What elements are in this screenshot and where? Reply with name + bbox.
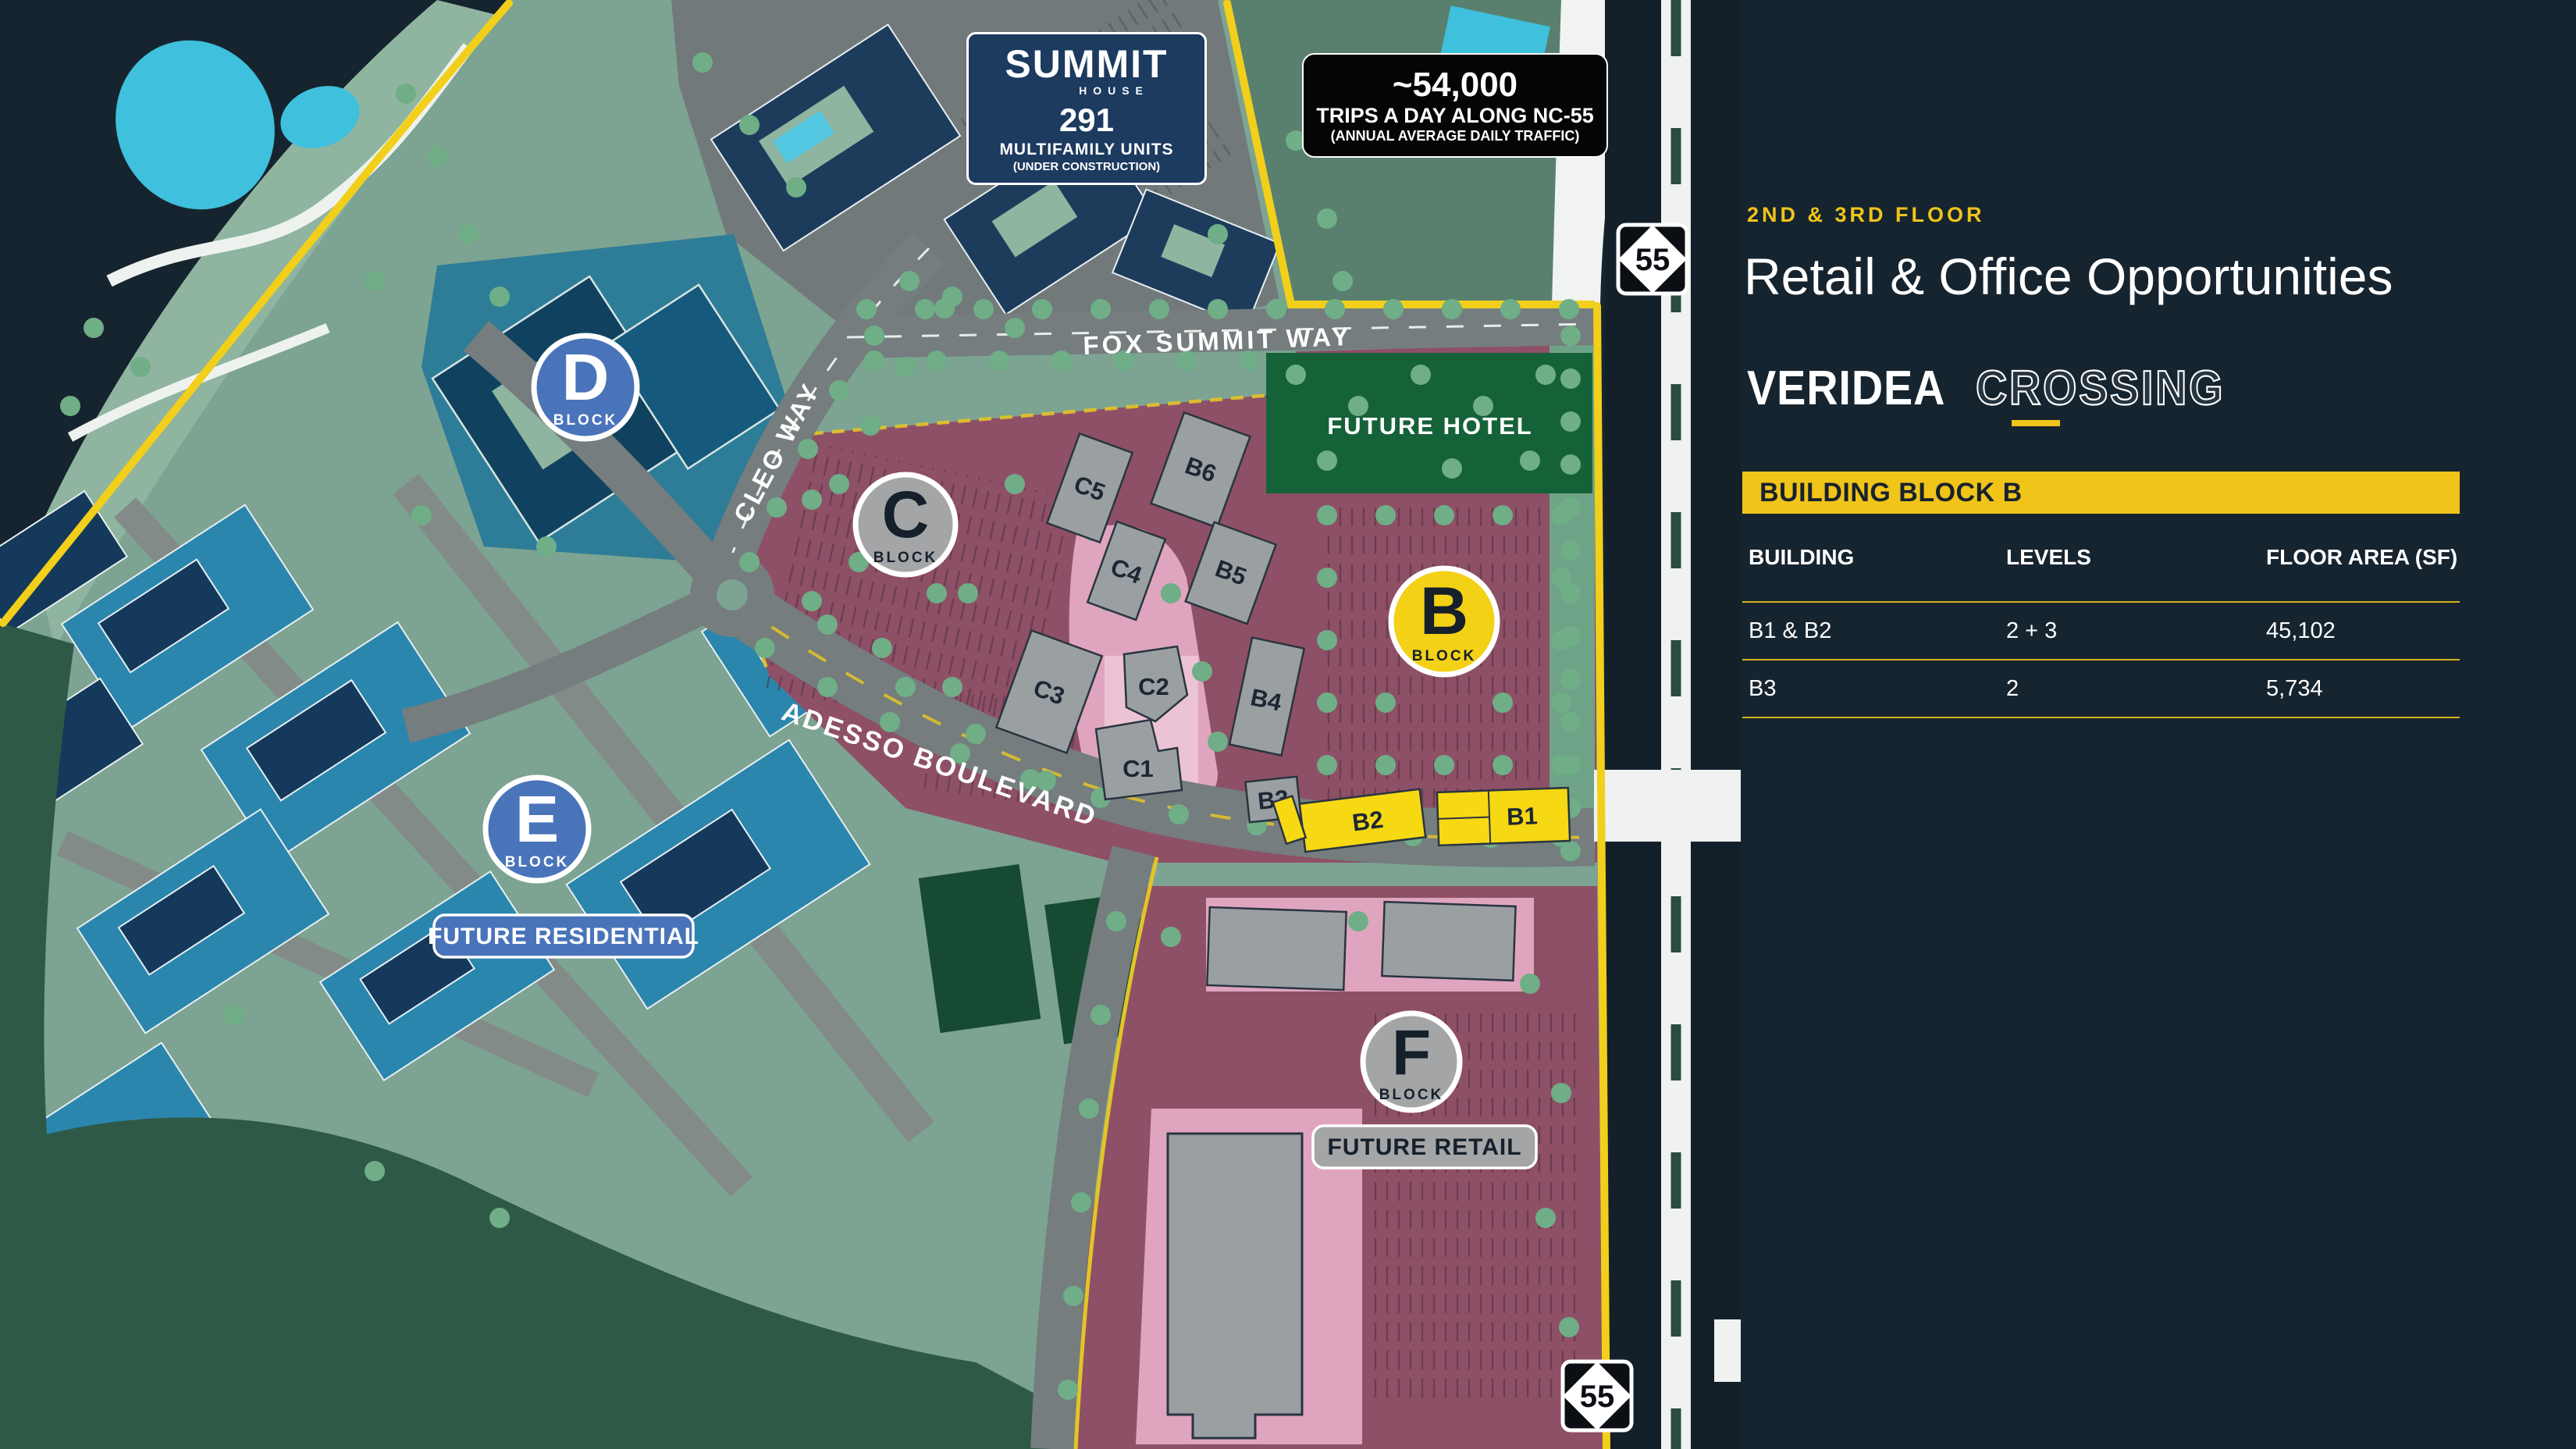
tree-icon — [536, 536, 557, 557]
tree-icon — [958, 583, 978, 603]
tree-icon — [895, 357, 916, 377]
tree-icon — [1091, 299, 1111, 319]
summit-house-sign: SUMMIT HOUSE 291 MULTIFAMILY UNITS (UNDE… — [966, 32, 1207, 185]
cell-levels: 2 — [2000, 676, 2260, 702]
traffic-line3: (ANNUAL AVERAGE DAILY TRAFFIC) — [1331, 129, 1580, 144]
anchor-building — [1168, 1134, 1302, 1438]
tree-icon — [927, 583, 947, 603]
tree-icon — [1520, 974, 1540, 994]
brand-underline — [2012, 420, 2060, 426]
col-floor-area: FLOOR AREA (SF) — [2260, 545, 2460, 570]
tree-icon — [1560, 669, 1581, 689]
cell-building: B1 & B2 — [1742, 618, 2000, 644]
future-residential-label: FUTURE RESIDENTIAL — [428, 924, 699, 949]
table-header: BUILDING BLOCK B — [1742, 472, 2460, 514]
table-row: B3 2 5,734 — [1742, 660, 2460, 718]
tree-icon — [739, 552, 760, 572]
tree-icon — [1192, 661, 1212, 682]
tree-icon — [1559, 1317, 1579, 1337]
tree-icon — [1325, 299, 1345, 319]
tree-icon — [1434, 505, 1454, 525]
tree-icon — [1079, 1098, 1099, 1119]
block-marker-c: C BLOCK — [856, 475, 955, 575]
tree-icon — [1560, 326, 1581, 346]
tree-icon — [130, 357, 151, 377]
cell-levels: 2 + 3 — [2000, 618, 2260, 644]
tree-icon — [84, 318, 104, 338]
tree-icon — [1535, 365, 1556, 385]
tree-icon — [1560, 755, 1581, 775]
tree-icon — [1161, 583, 1181, 603]
tree-icon — [1208, 224, 1228, 244]
tree-icon — [1032, 299, 1052, 319]
tree-icon — [458, 224, 479, 244]
svg-text:55: 55 — [1635, 243, 1670, 277]
tree-icon — [1317, 208, 1337, 229]
tree-icon — [1106, 911, 1126, 931]
tree-icon — [1383, 299, 1404, 319]
tree-icon — [1058, 1380, 1078, 1400]
tree-icon — [1348, 911, 1368, 931]
tree-icon — [1500, 299, 1521, 319]
tree-icon — [927, 351, 947, 371]
tree-icon — [1071, 1192, 1091, 1212]
tree-icon — [1551, 1083, 1571, 1103]
tree-icon — [1560, 712, 1581, 732]
tree-icon — [1005, 318, 1025, 338]
tree-icon — [489, 287, 510, 307]
tree-icon — [802, 591, 822, 611]
block-marker-d: D BLOCK — [534, 336, 637, 439]
tree-icon — [864, 326, 884, 346]
svg-text:C: C — [882, 478, 930, 551]
tree-icon — [1493, 505, 1513, 525]
brand-name-solid: VERIDEA — [1747, 361, 1945, 416]
tree-icon — [365, 271, 385, 291]
traffic-line2: TRIPS A DAY ALONG NC-55 — [1316, 105, 1594, 126]
tree-icon — [989, 351, 1009, 371]
svg-text:D: D — [562, 340, 610, 414]
tree-icon — [489, 1208, 510, 1228]
tree-icon — [872, 638, 892, 658]
tree-icon — [973, 299, 994, 319]
tree-icon — [411, 505, 432, 525]
table-column-headers: BUILDING LEVELS FLOOR AREA (SF) — [1742, 514, 2460, 603]
tree-icon — [692, 52, 713, 73]
tree-icon — [1535, 1208, 1556, 1228]
tree-icon — [1560, 368, 1581, 389]
tree-icon — [966, 724, 986, 744]
tree-icon — [942, 287, 962, 307]
tree-icon — [396, 84, 416, 104]
svg-text:BLOCK: BLOCK — [505, 854, 570, 870]
cell-floor-area: 45,102 — [2260, 618, 2460, 644]
tree-icon — [1493, 755, 1513, 775]
tree-icon — [224, 1005, 244, 1025]
nc55-shield-top: 55 — [1618, 225, 1687, 294]
tree-icon — [1411, 365, 1431, 385]
info-panel: 2ND & 3RD FLOOR Retail & Office Opportun… — [1742, 0, 2576, 1449]
tree-icon — [829, 380, 849, 401]
tree-icon — [1051, 351, 1072, 371]
tree-icon — [1559, 299, 1579, 319]
traffic-count: ~54,000 — [1393, 67, 1517, 103]
brand-name-outline: CROSSING — [1976, 361, 2225, 416]
summit-sign-title: SUMMIT — [1005, 45, 1168, 84]
tree-icon — [1169, 804, 1189, 824]
summit-sign-subtitle: HOUSE — [1079, 85, 1149, 96]
svg-text:E: E — [515, 782, 559, 856]
tree-icon — [1551, 692, 1571, 713]
veridea-crossing-flyer: B6 C5 C4 B5 C3 C2 C1 B4 B3 B2 B1 FOX SUM… — [0, 0, 2576, 1449]
svg-text:BLOCK: BLOCK — [873, 550, 938, 566]
tree-icon — [1520, 450, 1540, 471]
tree-icon — [1332, 271, 1353, 291]
tree-icon — [1560, 841, 1581, 861]
tree-icon — [1208, 299, 1228, 319]
cell-building: B3 — [1742, 676, 2000, 702]
tree-icon — [802, 490, 822, 510]
tree-icon — [1317, 755, 1337, 775]
tree-icon — [1442, 299, 1462, 319]
tree-icon — [1317, 692, 1337, 713]
tree-icon — [856, 299, 877, 319]
building-table: BUILDING BLOCK B BUILDING LEVELS FLOOR A… — [1742, 472, 2460, 718]
tree-icon — [1434, 755, 1454, 775]
tree-icon — [1560, 454, 1581, 475]
nc55-shield-bottom: 55 — [1563, 1362, 1631, 1430]
tree-icon — [1560, 411, 1581, 432]
tree-icon — [755, 638, 775, 658]
block-marker-f: F BLOCK — [1363, 1013, 1460, 1110]
tree-icon — [739, 115, 760, 135]
site-plan-map: B6 C5 C4 B5 C3 C2 C1 B4 B3 B2 B1 FOX SUM… — [0, 0, 1741, 1449]
svg-text:B: B — [1420, 574, 1468, 649]
building-label-highlight: B2 — [1350, 806, 1385, 837]
tree-icon — [817, 614, 838, 635]
block-marker-e: E BLOCK — [486, 778, 589, 881]
block-marker-b: B BLOCK — [1391, 568, 1497, 675]
cell-floor-area: 5,734 — [2260, 676, 2460, 702]
svg-text:BLOCK: BLOCK — [1379, 1087, 1444, 1103]
tree-icon — [864, 351, 884, 371]
tree-icon — [786, 177, 806, 198]
tree-icon — [895, 677, 916, 697]
tree-icon — [1063, 1286, 1083, 1306]
tree-icon — [1317, 450, 1337, 471]
svg-text:F: F — [1392, 1017, 1431, 1088]
tree-icon — [1149, 299, 1169, 319]
summit-sign-status: (UNDER CONSTRUCTION) — [1013, 161, 1160, 173]
tree-icon — [1208, 732, 1228, 752]
tree-icon — [1317, 505, 1337, 525]
tree-icon — [1317, 568, 1337, 588]
tree-icon — [798, 439, 818, 459]
tree-icon — [1005, 474, 1025, 494]
summit-sign-units-label: MULTIFAMILY UNITS — [999, 141, 1173, 158]
tree-icon — [60, 396, 80, 416]
tree-icon — [817, 677, 838, 697]
nc55-corridor — [1594, 0, 1741, 1449]
tree-icon — [1266, 299, 1286, 319]
tree-icon — [767, 497, 787, 518]
future-hotel-label: FUTURE HOTEL — [1327, 412, 1532, 440]
future-retail-label: FUTURE RETAIL — [1327, 1134, 1521, 1160]
tree-icon — [1161, 927, 1181, 947]
tree-icon — [1375, 755, 1396, 775]
svg-text:BLOCK: BLOCK — [553, 412, 618, 429]
tree-icon — [915, 299, 935, 319]
summit-sign-units: 291 — [1059, 104, 1114, 137]
tree-icon — [365, 1161, 385, 1181]
building-label: C1 — [1123, 755, 1154, 782]
tree-icon — [1442, 458, 1462, 479]
tree-icon — [1560, 497, 1581, 518]
col-levels: LEVELS — [2000, 545, 2260, 570]
building-label-highlight: B1 — [1507, 802, 1539, 830]
svg-text:BLOCK: BLOCK — [1412, 648, 1477, 664]
tree-icon — [1375, 692, 1396, 713]
tree-icon — [1317, 630, 1337, 650]
tree-icon — [1493, 692, 1513, 713]
table-row: B1 & B2 2 + 3 45,102 — [1742, 603, 2460, 660]
col-building: BUILDING — [1742, 545, 2000, 570]
page-title: Retail & Office Opportunities — [1744, 247, 2393, 306]
tree-icon — [1560, 583, 1581, 603]
tree-icon — [1375, 505, 1396, 525]
building-label: C2 — [1138, 673, 1169, 700]
tree-icon — [1091, 1005, 1111, 1025]
tree-icon — [427, 146, 447, 166]
tree-icon — [899, 271, 920, 291]
tree-icon — [829, 474, 849, 494]
tree-icon — [1560, 540, 1581, 561]
tree-icon — [860, 415, 881, 436]
floor-label: 2ND & 3RD FLOOR — [1747, 203, 1985, 227]
traffic-count-sign: ~54,000 TRIPS A DAY ALONG NC-55 (ANNUAL … — [1302, 53, 1608, 158]
tree-icon — [1286, 365, 1306, 385]
tree-icon — [942, 677, 962, 697]
brand-logo: VERIDEA CROSSING — [1747, 361, 2253, 416]
svg-text:55: 55 — [1580, 1380, 1615, 1414]
tree-icon — [1560, 626, 1581, 646]
